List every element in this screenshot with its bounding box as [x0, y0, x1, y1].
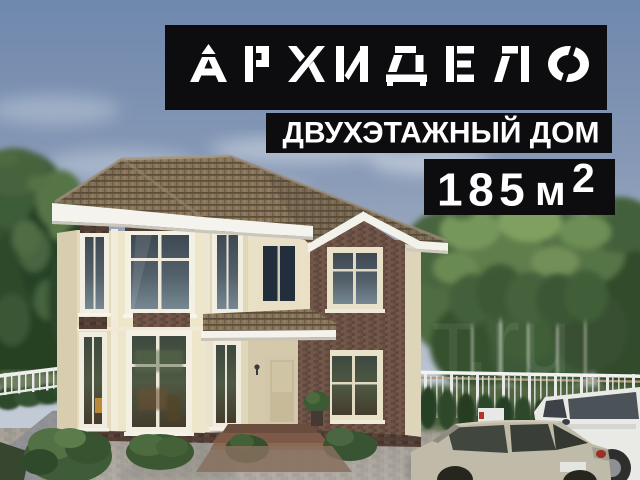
svg-text:ДВУХЭТАЖНЫЙ ДОМ: ДВУХЭТАЖНЫЙ ДОМ [282, 116, 599, 150]
svg-text:м: м [535, 167, 566, 214]
svg-text:2: 2 [572, 155, 595, 201]
svg-text:т.ru: т.ru [432, 290, 571, 392]
svg-text:185: 185 [437, 164, 530, 216]
